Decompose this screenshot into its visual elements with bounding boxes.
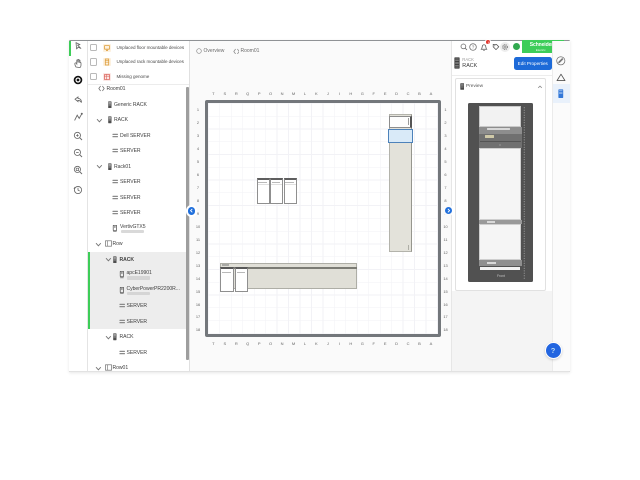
- svg-text:?: ?: [472, 44, 475, 49]
